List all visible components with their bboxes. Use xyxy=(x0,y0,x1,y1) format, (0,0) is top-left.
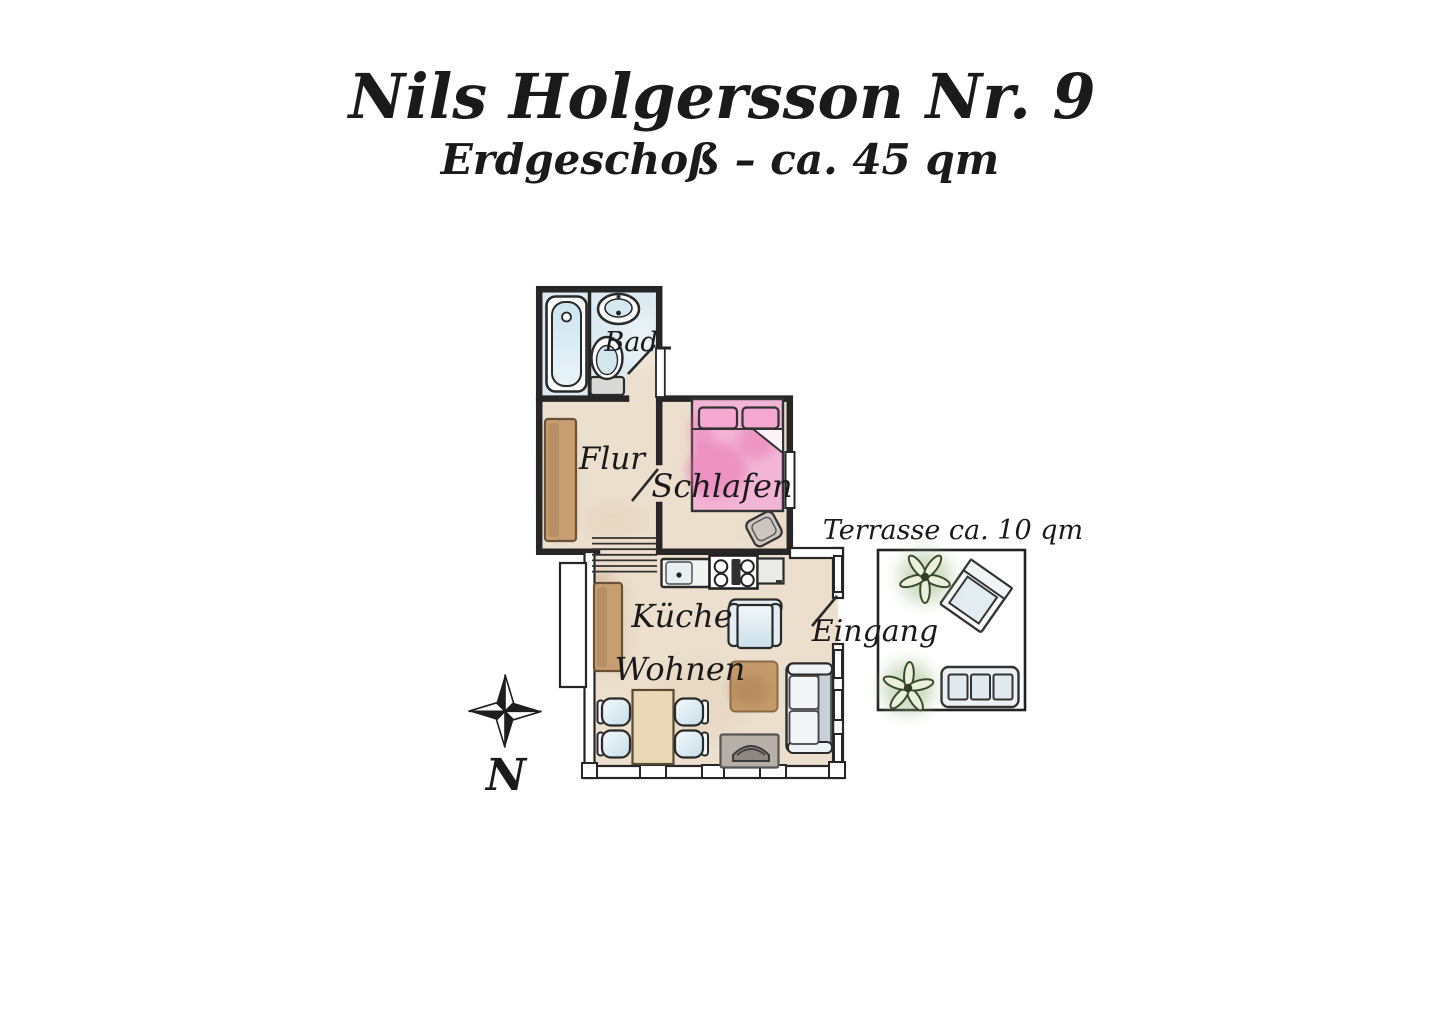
steps xyxy=(592,538,657,572)
dining-chair xyxy=(598,731,631,758)
corner-post-left xyxy=(582,763,597,778)
living-window-bottom-1 xyxy=(640,765,666,778)
dining-chair xyxy=(675,731,708,758)
burner xyxy=(741,574,754,587)
dining-chair xyxy=(598,699,631,726)
sink-drain xyxy=(676,572,681,577)
terrace-bench xyxy=(942,667,1019,707)
plant xyxy=(899,551,951,603)
tv-table xyxy=(721,735,779,768)
burner xyxy=(715,574,728,587)
armchair xyxy=(729,600,782,649)
washbasin xyxy=(598,294,639,324)
floor-plan-page: Nils Holgersson Nr. 9 Erdgeschoß – ca. 4… xyxy=(0,0,1440,1018)
north-label: N xyxy=(484,750,528,801)
basement-shaft xyxy=(560,563,586,687)
label-schlafen: Schlafen xyxy=(651,467,792,505)
stove xyxy=(710,556,758,589)
sofa xyxy=(787,664,834,754)
dining-chair xyxy=(675,699,708,726)
hallway-wardrobe xyxy=(545,419,576,541)
kitchen-counter xyxy=(662,556,784,589)
burner xyxy=(741,560,754,573)
label-wohnen: Wohnen xyxy=(615,650,746,688)
label-eingang: Eingang xyxy=(811,614,938,649)
pillow xyxy=(743,408,779,429)
corner-post-right xyxy=(829,762,845,778)
label-flur: Flur xyxy=(578,441,647,477)
burner xyxy=(715,560,728,573)
bathtub xyxy=(547,297,587,392)
label-terrasse: Terrasse ca. 10 qm xyxy=(823,515,1083,546)
bathtub-drain xyxy=(562,313,571,322)
dining-table xyxy=(633,690,674,764)
pillow xyxy=(699,408,737,429)
living-window-right-3 xyxy=(834,734,842,762)
compass-rose: N xyxy=(469,675,542,802)
entry-side-window xyxy=(834,556,842,592)
label-kueche: Küche xyxy=(630,597,732,635)
living-window-right-1 xyxy=(834,650,842,678)
page-title: Nils Holgersson Nr. 9 xyxy=(347,60,1096,133)
kitchen-sink-unit xyxy=(662,559,710,587)
living-window-right-2 xyxy=(834,690,842,720)
floor-plan-canvas: Nils Holgersson Nr. 9 Erdgeschoß – ca. 4… xyxy=(0,0,1440,1018)
page-subtitle: Erdgeschoß – ca. 45 qm xyxy=(440,135,999,184)
kitchen-side-unit xyxy=(758,559,784,584)
label-bad: Bad xyxy=(603,327,657,358)
